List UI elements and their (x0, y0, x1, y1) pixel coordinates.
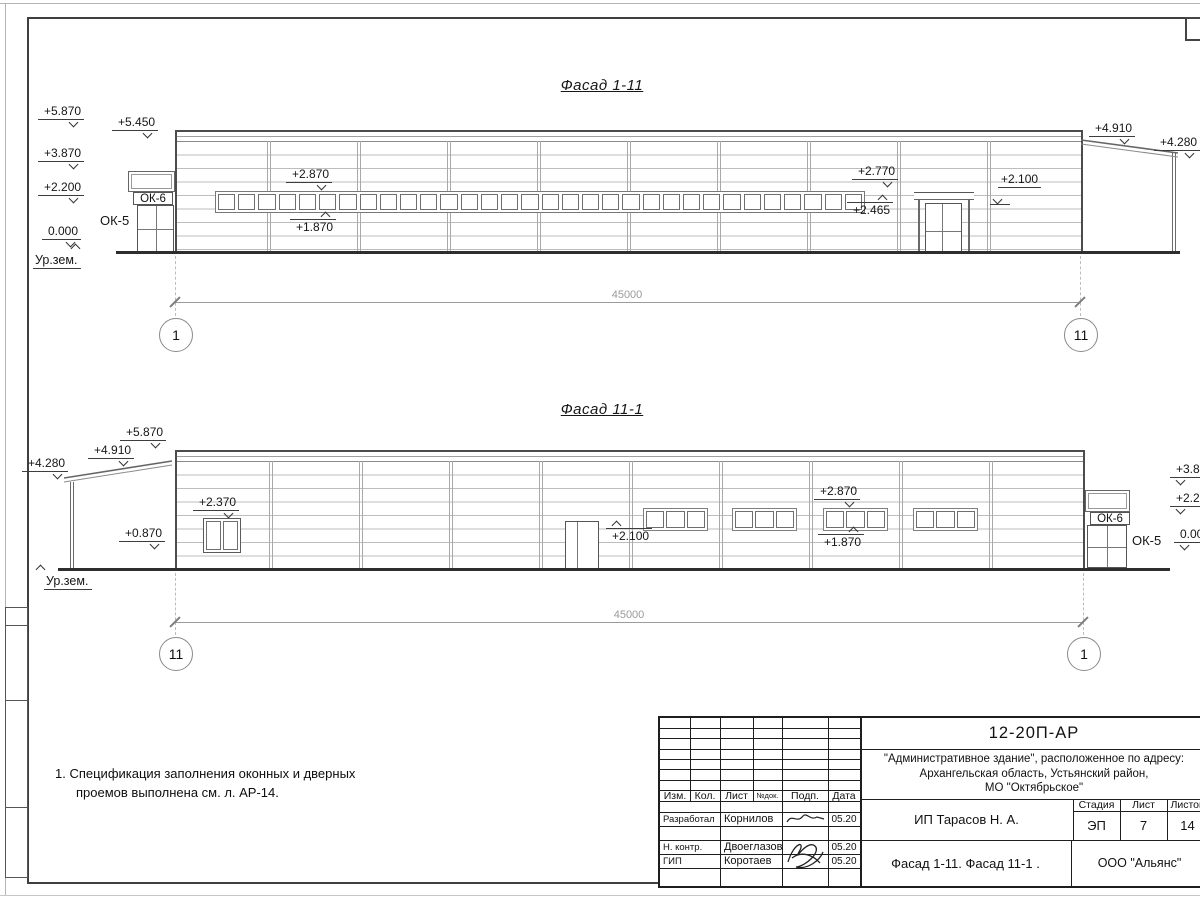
panel-joint (987, 141, 991, 251)
door-mullion (577, 522, 578, 568)
titleblock-line (860, 749, 1200, 750)
elevation-value: +5.870 (38, 105, 84, 120)
elevation-value: +2.370 (193, 496, 239, 511)
titleblock-col-data: Дата (828, 790, 860, 801)
elevation-value: +2.100 (606, 528, 652, 543)
document-number: 12-20П-АР (860, 718, 1200, 749)
ribbon-window (481, 194, 498, 210)
panel-joint (449, 461, 453, 568)
elevation-value: +2.465 (847, 202, 893, 217)
window-pane (206, 521, 221, 550)
titleblock-date: 05.20 (828, 841, 860, 853)
sheet-outer-top-line (0, 3, 1200, 4)
sheet-number: 7 (1120, 811, 1167, 840)
axis-bubble-11: 11 (1064, 318, 1098, 352)
titleblock-line (660, 749, 860, 750)
title-block: Изм. Кол. Лист №док. Подп. Дата Разработ… (658, 716, 1200, 888)
elevation-value: +2.770 (852, 165, 898, 180)
window-pane (916, 511, 934, 528)
panel-joint (629, 461, 633, 568)
door-rail (1088, 547, 1126, 548)
elevation-mark: +2.200 (1170, 492, 1200, 513)
elevation-value: +2.200 (1170, 492, 1200, 507)
elevation-value: +0.870 (119, 527, 165, 542)
window-pane (826, 511, 844, 528)
facade1-title: Фасад 1-11 (492, 77, 712, 94)
elevation-mark: +2.100 (606, 522, 652, 543)
facade2-dimension-line (175, 622, 1083, 623)
elevation-value: +4.910 (1089, 122, 1135, 137)
ribbon-window (562, 194, 579, 210)
elevation-mark: +4.910 (88, 444, 134, 465)
axis-extension-line (1083, 573, 1085, 635)
elevation-mark: +2.370 (193, 496, 239, 517)
titleblock-date: 05.20 (828, 855, 860, 867)
ribbon-window (279, 194, 296, 210)
axis-extension-line (175, 256, 177, 316)
project-line: МО "Октябрьское" (862, 781, 1200, 796)
ribbon-window (622, 194, 639, 210)
elevation-mark: +1.870 (818, 528, 864, 549)
stage-label: Стадия (1073, 799, 1120, 811)
elevation-value: +5.450 (112, 116, 158, 131)
window-pane (666, 511, 684, 528)
elevation-mark: +1.870 (290, 213, 336, 234)
elevation-value: +5.870 (120, 426, 166, 441)
facade2-ok6-window (1085, 490, 1130, 512)
titleblock-date: 05.20 (828, 813, 860, 825)
client-name: ИП Тарасов Н. А. (860, 799, 1073, 840)
panel-joint (989, 461, 993, 568)
frame-margin-cell (5, 625, 28, 701)
note-line: 1. Спецификация заполнения оконных и две… (55, 764, 355, 783)
elevation-mark: +2.200 (38, 181, 84, 202)
canopy-post (918, 200, 920, 252)
titleblock-line (660, 801, 860, 802)
titleblock-line (660, 868, 860, 869)
facade1-annex-wall (1172, 153, 1176, 252)
ribbon-window (825, 194, 842, 210)
ribbon-window (723, 194, 740, 210)
frame-margin-cell (5, 700, 28, 808)
elevation-mark: +5.870 (120, 426, 166, 447)
door-mullion (942, 204, 943, 251)
elevation-value: +3.870 (1170, 463, 1200, 478)
sheets-label: Листов (1167, 799, 1200, 811)
facade2-annex-wall (70, 482, 74, 569)
titleblock-line (660, 738, 860, 739)
axis-extension-line (1080, 256, 1082, 316)
facade2-title: Фасад 11-1 (492, 401, 712, 418)
elevation-mark: +4.280 (1154, 136, 1200, 157)
ribbon-window (602, 194, 619, 210)
ribbon-window (501, 194, 518, 210)
elevation-value: 0.000 (1174, 528, 1200, 543)
elevation-value: +1.870 (290, 219, 336, 234)
window-pane (846, 511, 864, 528)
facade2-ok5-label: ОК-5 (1132, 533, 1161, 548)
window-pane (936, 511, 954, 528)
axis-bubble-11: 11 (159, 637, 193, 671)
window-pane (735, 511, 753, 528)
sheets-total: 14 (1167, 811, 1200, 840)
frame-corner-cell (1185, 17, 1200, 41)
elevation-mark: +3.870 (38, 147, 84, 168)
panel-joint (269, 461, 273, 568)
ribbon-window (744, 194, 761, 210)
ribbon-window (218, 194, 235, 210)
elevation-mark: +2.770 (852, 165, 898, 186)
titleblock-line (660, 769, 860, 770)
drawing-sheet: Фасад 1-11 ОК-6 ОК-5 +5.870 +3.870 +2.20… (0, 0, 1200, 900)
ok6-window-inner (1088, 493, 1127, 509)
titleblock-col-list: Лист (720, 790, 753, 801)
titleblock-name: Коротаев (721, 855, 781, 867)
facade1-ribbon-window-band (215, 191, 865, 213)
elevation-mark: +4.910 (1089, 122, 1135, 143)
elevation-value: +4.280 (1154, 136, 1200, 151)
elevation-mark: 0.000 (1174, 528, 1200, 549)
ribbon-window (258, 194, 275, 210)
ribbon-window (380, 194, 397, 210)
elevation-value: +2.200 (38, 181, 84, 196)
facade1-dimension-line (175, 302, 1080, 303)
facade1-door-canopy (914, 192, 974, 200)
sheet-note: 1. Спецификация заполнения оконных и две… (55, 764, 355, 802)
canopy-post (968, 200, 970, 252)
ribbon-window (764, 194, 781, 210)
facade2-door (565, 521, 599, 569)
ribbon-window (542, 194, 559, 210)
facade2-ok6-label: ОК-6 (1090, 512, 1130, 525)
elevation-mark: +2.870 (286, 168, 332, 189)
elevation-value: +4.280 (22, 457, 68, 472)
panel-joint (359, 461, 363, 568)
door-rail (138, 229, 173, 230)
ribbon-window (643, 194, 660, 210)
frame-margin-cell (5, 807, 28, 878)
facade1-ok6-label: ОК-6 (133, 192, 173, 205)
facade1-ok6-window (128, 171, 175, 192)
project-line: Архангельская область, Устьянский район, (862, 767, 1200, 782)
panel-joint (897, 141, 901, 251)
window-pane (957, 511, 975, 528)
titleblock-line (660, 780, 860, 781)
ribbon-window (663, 194, 680, 210)
ribbon-window (461, 194, 478, 210)
facade2-ground-line (58, 568, 1170, 571)
titleblock-col-izm: Изм. (660, 790, 690, 801)
ribbon-window (703, 194, 720, 210)
window-pane (867, 511, 885, 528)
window-pane (687, 511, 705, 528)
sheet-outer-bottom-line (0, 895, 1200, 896)
ribbon-window (582, 194, 599, 210)
facade1-ok5-door (137, 205, 174, 252)
facade2-window-group (913, 508, 978, 531)
panel-joint (899, 461, 903, 568)
facade1-ok5-label: ОК-5 (100, 213, 129, 228)
project-description: "Административное здание", расположенное… (862, 752, 1200, 796)
door-rail (926, 231, 961, 232)
titleblock-col-ndoc: №док. (753, 790, 782, 801)
ribbon-window (360, 194, 377, 210)
ribbon-window (238, 194, 255, 210)
ribbon-window (804, 194, 821, 210)
titleblock-role: ГИП (660, 855, 720, 867)
titleblock-col-kol: Кол. (690, 790, 720, 801)
ribbon-window (339, 194, 356, 210)
elevation-shelf-line (990, 204, 1010, 205)
facade2-small-window (203, 518, 241, 553)
window-pane (755, 511, 773, 528)
axis-extension-line (175, 573, 177, 635)
axis-bubble-1: 1 (1067, 637, 1101, 671)
facade1-ground-line (116, 251, 1180, 254)
titleblock-col-podp: Подп. (782, 790, 828, 801)
elevation-value: +2.870 (814, 485, 860, 500)
stage-value: ЭП (1073, 811, 1120, 840)
window-pane (776, 511, 794, 528)
facade2-ok5-door (1087, 525, 1127, 568)
elevation-value: +2.870 (286, 168, 332, 183)
titleblock-line (660, 826, 860, 827)
signature (782, 836, 828, 872)
facade2-dimension-value: 45000 (594, 609, 664, 621)
frame-margin-cell (5, 607, 28, 626)
ribbon-window (683, 194, 700, 210)
panel-joint (719, 461, 723, 568)
project-line: "Административное здание", расположенное… (862, 752, 1200, 767)
ribbon-window (784, 194, 801, 210)
ribbon-window (521, 194, 538, 210)
note-line: проемов выполнена см. л. АР-14. (76, 783, 355, 802)
axis-bubble-1: 1 (159, 318, 193, 352)
elevation-value: +3.870 (38, 147, 84, 162)
titleblock-role: Н. контр. (660, 841, 720, 853)
ribbon-window (440, 194, 457, 210)
ribbon-window (420, 194, 437, 210)
elevation-mark: +5.450 (112, 116, 158, 137)
titleblock-line (660, 759, 860, 760)
elevation-mark: +2.465 (847, 196, 893, 217)
ribbon-window (400, 194, 417, 210)
facade1-entrance-door (925, 203, 962, 252)
elevation-mark: +2.870 (814, 485, 860, 506)
ribbon-window (299, 194, 316, 210)
elevation-value: +1.870 (818, 534, 864, 549)
company-name: ООО "Альянс" (1071, 840, 1200, 886)
elevation-value: +2.100 (998, 172, 1041, 188)
titleblock-name: Двоеглазов (721, 841, 781, 853)
panel-joint (539, 461, 543, 568)
elevation-mark: +5.870 (38, 105, 84, 126)
titleblock-role: Разработал (660, 813, 720, 825)
drawing-title: Фасад 1-11. Фасад 11-1 . (860, 840, 1071, 886)
ribbon-window (319, 194, 336, 210)
ground-level-label: Ур.зем. (44, 574, 92, 590)
panel-joint (809, 461, 813, 568)
ground-level-label: Ур.зем. (33, 253, 81, 269)
sheet-label: Лист (1120, 799, 1167, 811)
elevation-mark: +4.280 (22, 457, 68, 478)
facade2-window-group (643, 508, 708, 531)
facade2-window-group (732, 508, 797, 531)
facade1-dimension-value: 45000 (592, 289, 662, 301)
elevation-mark: +3.870 (1170, 463, 1200, 484)
window-pane (223, 521, 238, 550)
ok6-window-inner (131, 174, 172, 189)
titleblock-name: Корнилов (721, 813, 781, 825)
elevation-value: 0.000 (42, 225, 81, 240)
signature (784, 811, 828, 826)
elevation-mark: +0.870 (119, 527, 165, 548)
titleblock-line (660, 728, 860, 729)
